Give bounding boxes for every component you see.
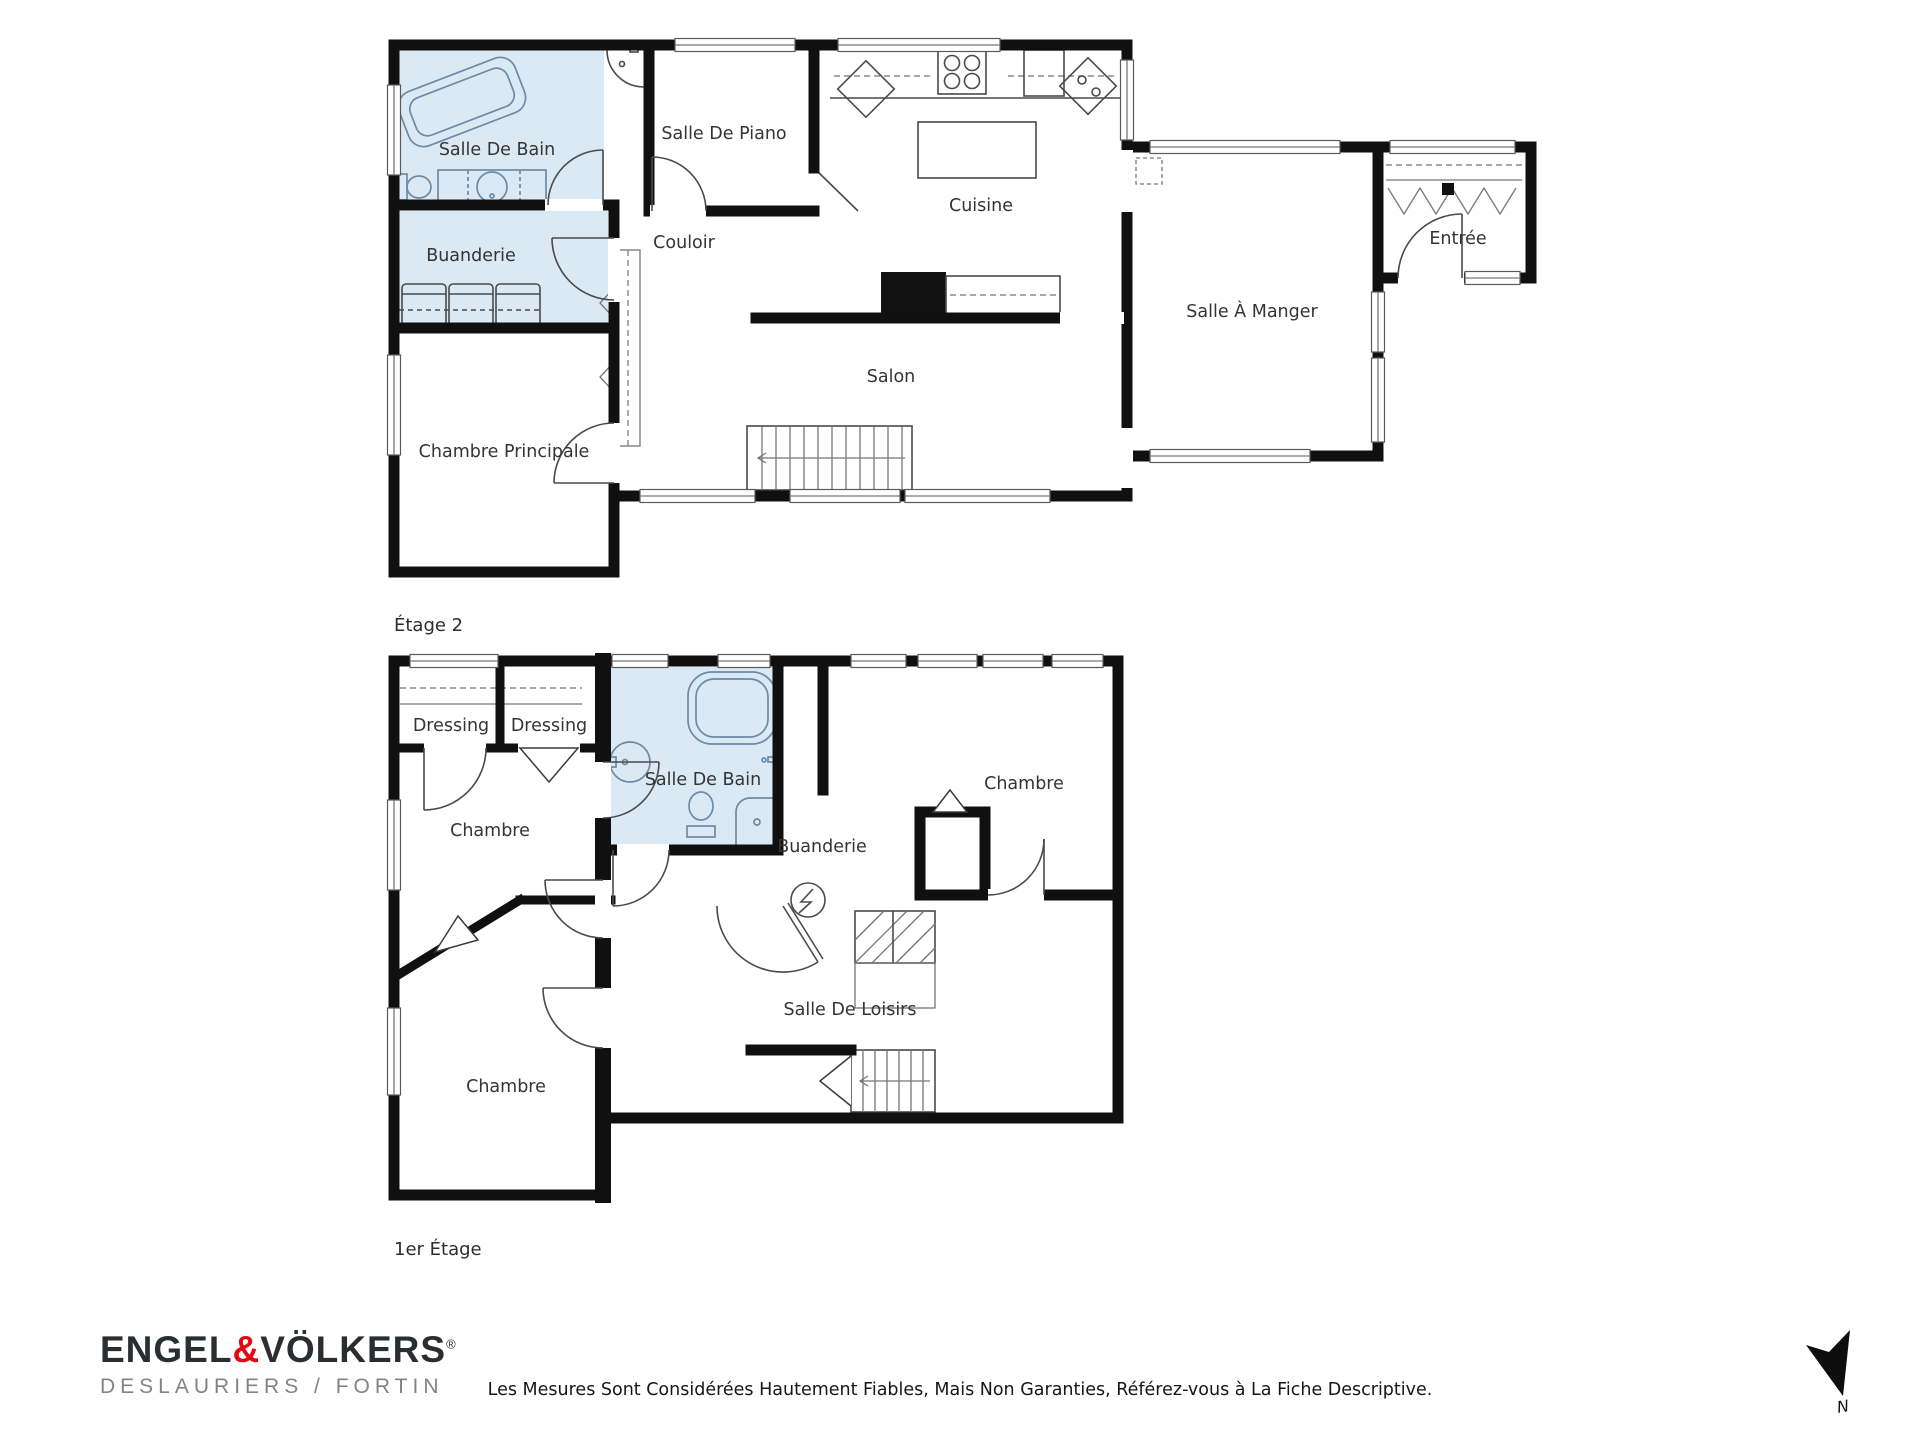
room-label-buanderie: Buanderie xyxy=(777,837,867,857)
measurement-disclaimer: Les Mesures Sont Considérées Hautement F… xyxy=(0,1380,1920,1400)
stairs-up-icon xyxy=(747,426,912,490)
room-label-chambre-principale: Chambre Principale xyxy=(419,442,590,462)
chimney xyxy=(855,911,935,1008)
room-label-chambre-bas: Chambre xyxy=(466,1077,546,1097)
dressing-shelves xyxy=(400,688,582,704)
room-label-cuisine: Cuisine xyxy=(949,196,1013,216)
room-label-salon: Salon xyxy=(867,367,916,387)
salle-de-bain-fill xyxy=(611,667,778,850)
caption-1er-etage: 1er Étage xyxy=(394,1238,482,1260)
room-label-salle-de-loisirs: Salle De Loisirs xyxy=(784,1000,917,1020)
kitchen-counter xyxy=(830,50,1120,178)
kitchen-island-icon xyxy=(918,122,1036,178)
water-heater-icon xyxy=(791,883,825,917)
room-label-salle-de-bain: Salle De Bain xyxy=(439,140,555,160)
corner-sink-icon xyxy=(1060,58,1117,115)
entree-closet xyxy=(1386,165,1522,214)
brand-ampersand: & xyxy=(232,1329,260,1370)
corner-cabinet-icon xyxy=(838,61,895,118)
room-label-salle-de-bain: Salle De Bain xyxy=(645,770,761,790)
north-label: N xyxy=(1835,1396,1850,1417)
plan-etage2: Salle De Bain Salle De Piano Cuisine Cou… xyxy=(388,39,1532,637)
stairs-down-icon xyxy=(820,1050,935,1112)
room-label-dressing-2: Dressing xyxy=(511,716,587,736)
counter-edge xyxy=(814,168,858,211)
caption-etage2: Étage 2 xyxy=(394,614,463,636)
brand-logo-line1: ENGEL&VÖLKERS® xyxy=(100,1330,457,1371)
room-label-entree: Entrée xyxy=(1429,229,1486,249)
floorplan-page: Salle De Bain Salle De Piano Cuisine Cou… xyxy=(0,0,1920,1440)
room-label-couloir: Couloir xyxy=(653,233,715,253)
room-label-chambre-droite: Chambre xyxy=(984,774,1064,794)
north-arrow: N xyxy=(1788,1318,1878,1428)
appliance-icon xyxy=(1024,50,1064,96)
room-label-buanderie: Buanderie xyxy=(426,246,516,266)
registered-mark: ® xyxy=(446,1337,457,1352)
stove-icon xyxy=(938,50,986,94)
room-label-salle-a-manger: Salle À Manger xyxy=(1186,300,1318,322)
floorplan-drawing: Salle De Bain Salle De Piano Cuisine Cou… xyxy=(0,0,1920,1440)
plan-etage1: Dressing Dressing Salle De Bain Chambre … xyxy=(388,655,1119,1261)
room-label-chambre-milieu: Chambre xyxy=(450,821,530,841)
room-label-salle-de-piano: Salle De Piano xyxy=(661,124,786,144)
room-label-dressing-1: Dressing xyxy=(413,716,489,736)
north-arrow-icon xyxy=(1806,1330,1850,1396)
fireplace-block xyxy=(881,272,946,318)
